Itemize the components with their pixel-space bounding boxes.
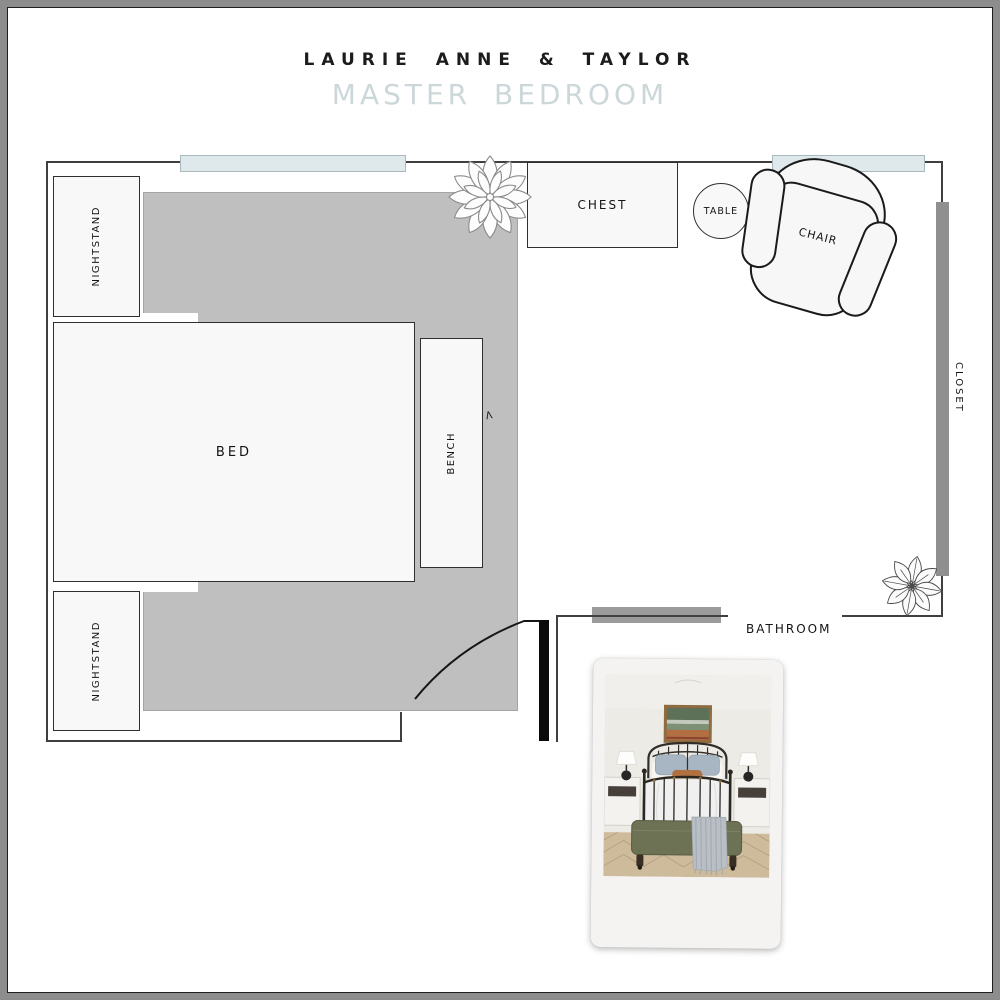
nightstand-top-label: NIGHTSTAND [91,206,102,287]
rug-notch-bottom [140,582,198,592]
wall-bottom-left [46,740,402,742]
rug-notch-top [140,313,198,322]
bed: BED [53,322,415,582]
wall-bathroom-left [556,615,728,617]
plant-icon-bottom [881,555,942,616]
door-panel [539,620,549,741]
bedroom-photo-illustration [603,674,771,878]
round-table: TABLE [693,183,749,239]
artwork [664,705,712,744]
page-title: MASTER BEDROOM [0,78,1000,111]
throw-blanket [691,817,728,875]
inspiration-photo-polaroid [590,658,783,949]
closet-label: CLOSET [953,362,964,413]
nightstand-top: NIGHTSTAND [53,176,140,317]
wall-door-right [556,615,558,742]
bed-label: BED [216,445,252,460]
table-label: TABLE [704,206,738,217]
bench-label: BENCH [446,432,457,475]
wall-bathroom-right [842,615,943,617]
client-name: LAURIE ANNE & TAYLOR [0,50,1000,70]
nightstand-bottom-label: NIGHTSTAND [91,621,102,702]
floor-plan-board: LAURIE ANNE & TAYLOR MASTER BEDROOM NIGH… [0,0,1000,1000]
chest: CHEST [527,162,678,248]
bedroom-photo [603,674,771,878]
bathroom-label: BATHROOM [746,622,831,636]
closet-doors-bar [936,202,949,576]
wall-left [46,161,48,742]
door-jamb [400,712,402,742]
window-left [180,155,406,172]
nightstand-bottom: NIGHTSTAND [53,591,140,731]
chest-label: CHEST [578,198,628,212]
bench: BENCH [420,338,483,568]
